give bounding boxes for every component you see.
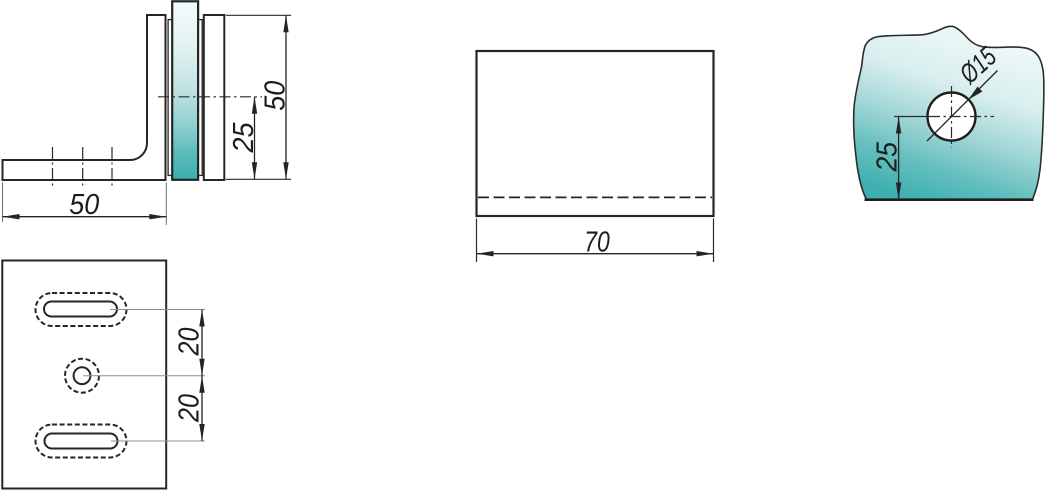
svg-text:20: 20	[173, 394, 205, 423]
svg-text:50: 50	[69, 189, 99, 221]
svg-text:20: 20	[173, 328, 205, 357]
svg-text:70: 70	[584, 227, 610, 259]
svg-text:50: 50	[259, 81, 291, 111]
svg-text:25: 25	[228, 122, 260, 154]
svg-text:25: 25	[872, 141, 904, 172]
